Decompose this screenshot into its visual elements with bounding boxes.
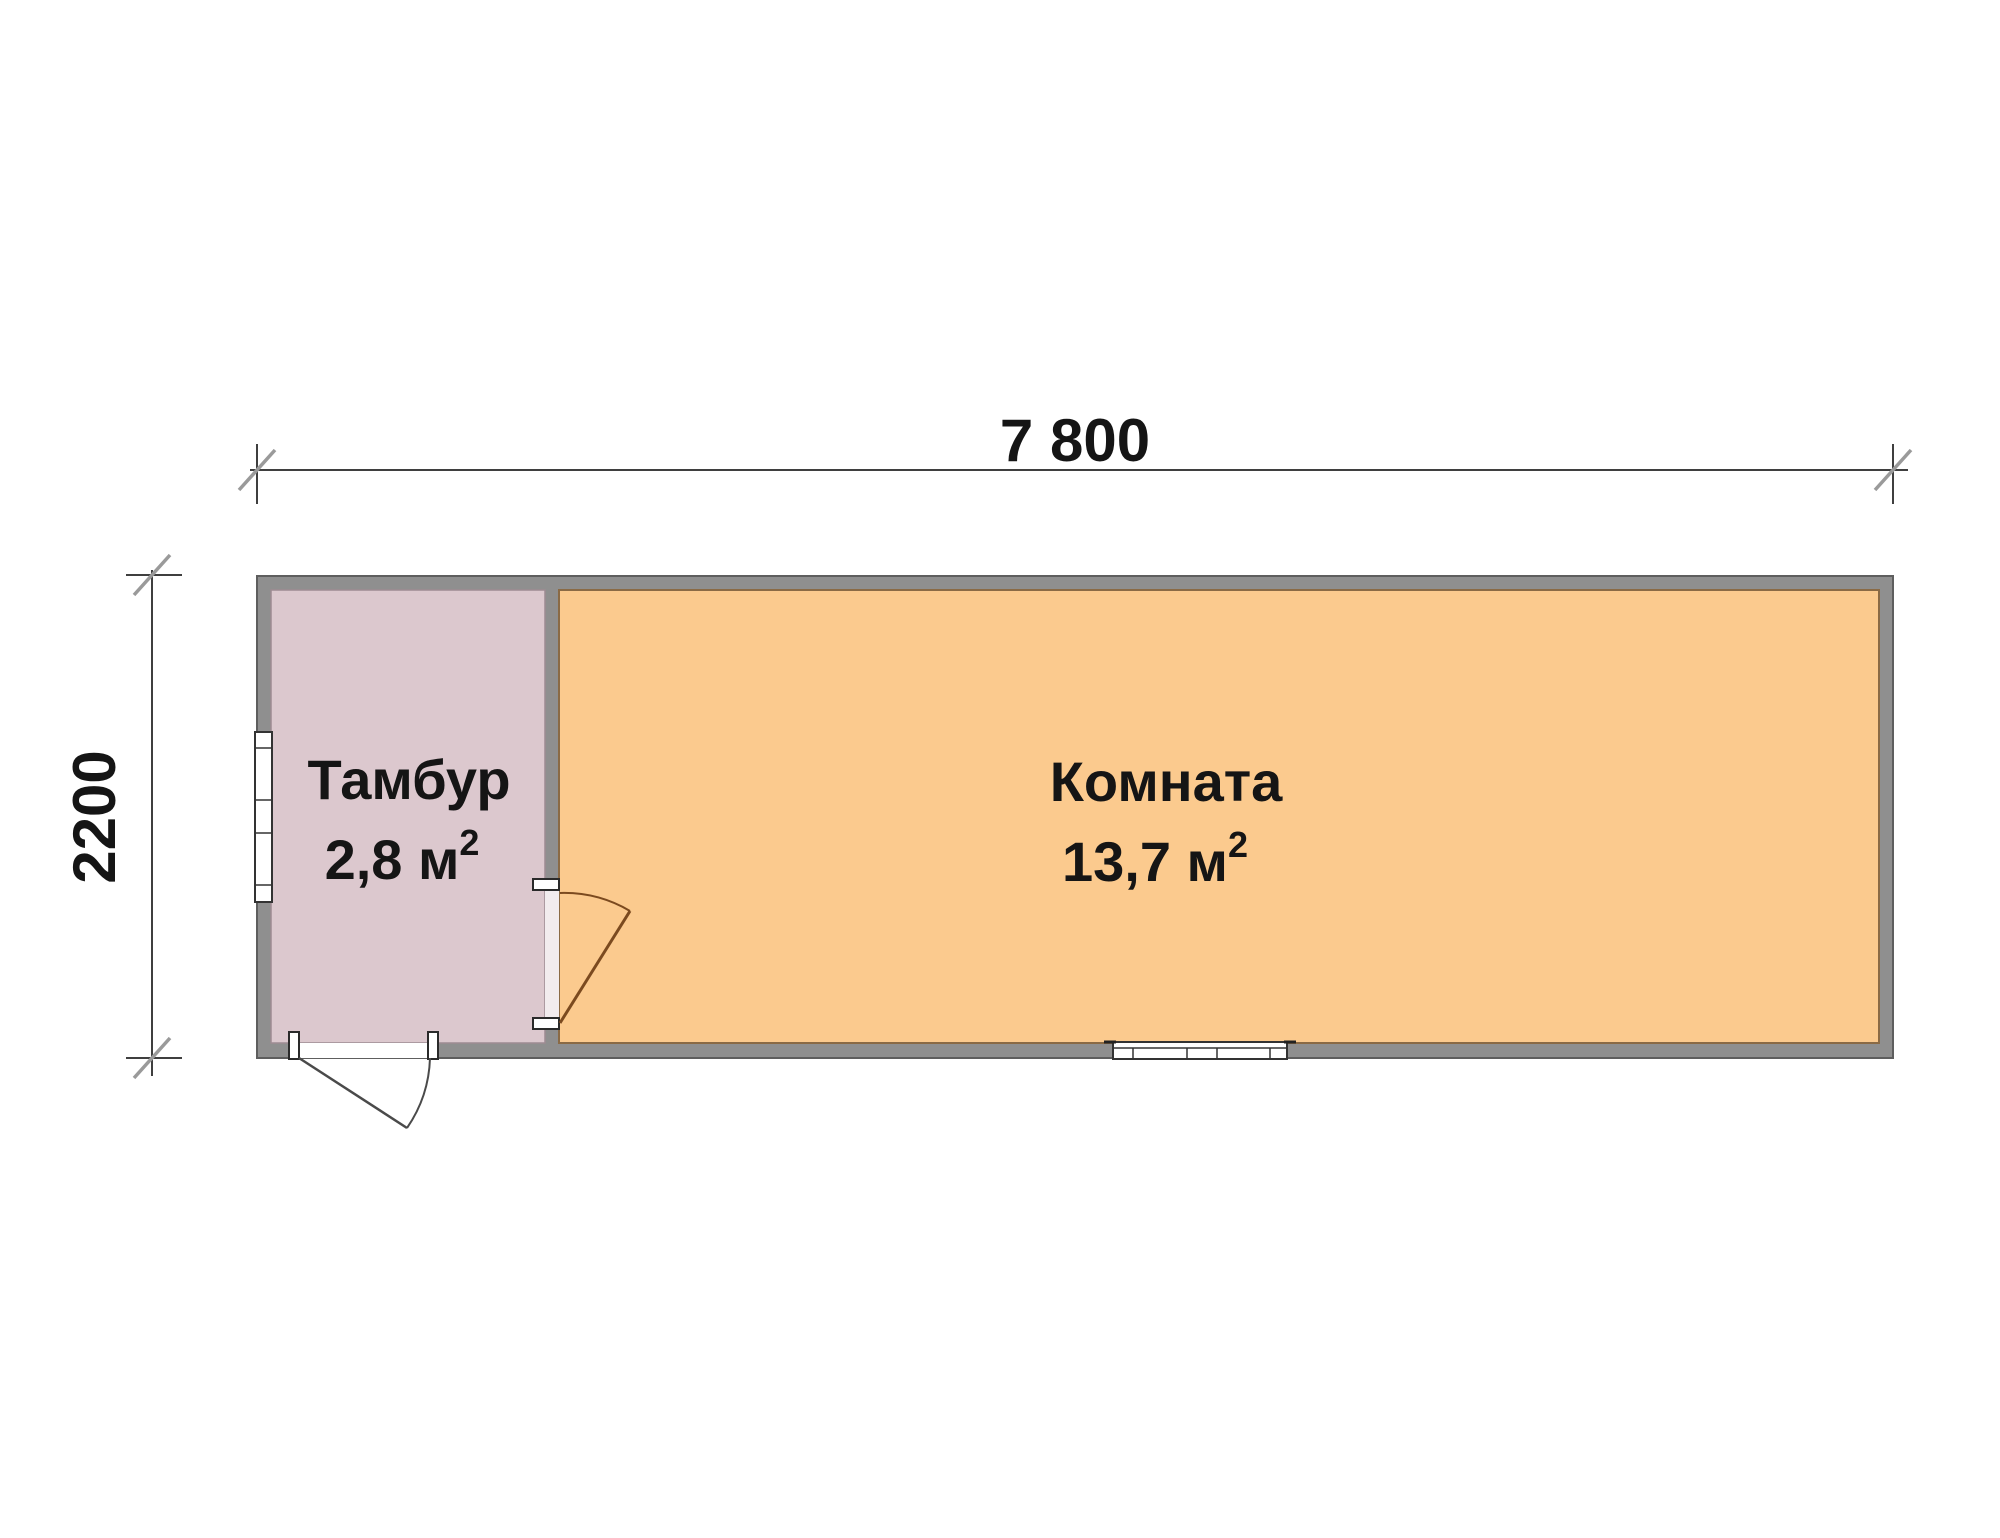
room-komnata-area: 13,7 м2 bbox=[1062, 824, 1248, 893]
room-komnata-floor bbox=[559, 590, 1879, 1043]
dimension-width-label: 7 800 bbox=[1000, 407, 1150, 474]
room-komnata-area-value: 13,7 м bbox=[1062, 830, 1228, 893]
dimension-width: 7 800 bbox=[239, 407, 1911, 504]
entrance-door bbox=[289, 1032, 438, 1128]
entrance-door-jamb-left bbox=[289, 1032, 299, 1059]
entrance-door-opening bbox=[299, 1043, 428, 1058]
dimension-height: 2200 bbox=[61, 555, 182, 1078]
entrance-door-leaf bbox=[299, 1058, 407, 1128]
floor-plan-canvas: 7 800 2200 bbox=[0, 0, 2000, 1538]
interior-door-jamb-bottom bbox=[533, 1018, 559, 1029]
dimension-height-label: 2200 bbox=[61, 750, 128, 883]
bottom-wall-window bbox=[1104, 1042, 1296, 1059]
entrance-door-swing-arc bbox=[407, 1058, 430, 1128]
entrance-door-jamb-right bbox=[428, 1032, 438, 1059]
room-tambur-area-sup: 2 bbox=[459, 822, 479, 863]
room-komnata-area-sup: 2 bbox=[1228, 824, 1248, 865]
floor-plan: 7 800 2200 bbox=[0, 0, 2000, 1538]
left-window-frame bbox=[255, 732, 272, 902]
left-wall-window bbox=[255, 732, 272, 902]
room-tambur-floor bbox=[271, 590, 545, 1043]
bottom-window-frame bbox=[1113, 1042, 1287, 1059]
room-tambur-area-value: 2,8 м bbox=[325, 828, 460, 891]
room-komnata-name: Комната bbox=[1050, 750, 1283, 813]
room-tambur-area: 2,8 м2 bbox=[325, 822, 480, 891]
interior-door-jamb-top bbox=[533, 879, 559, 890]
interior-door-opening bbox=[545, 890, 559, 1018]
room-tambur-name: Тамбур bbox=[307, 748, 510, 811]
